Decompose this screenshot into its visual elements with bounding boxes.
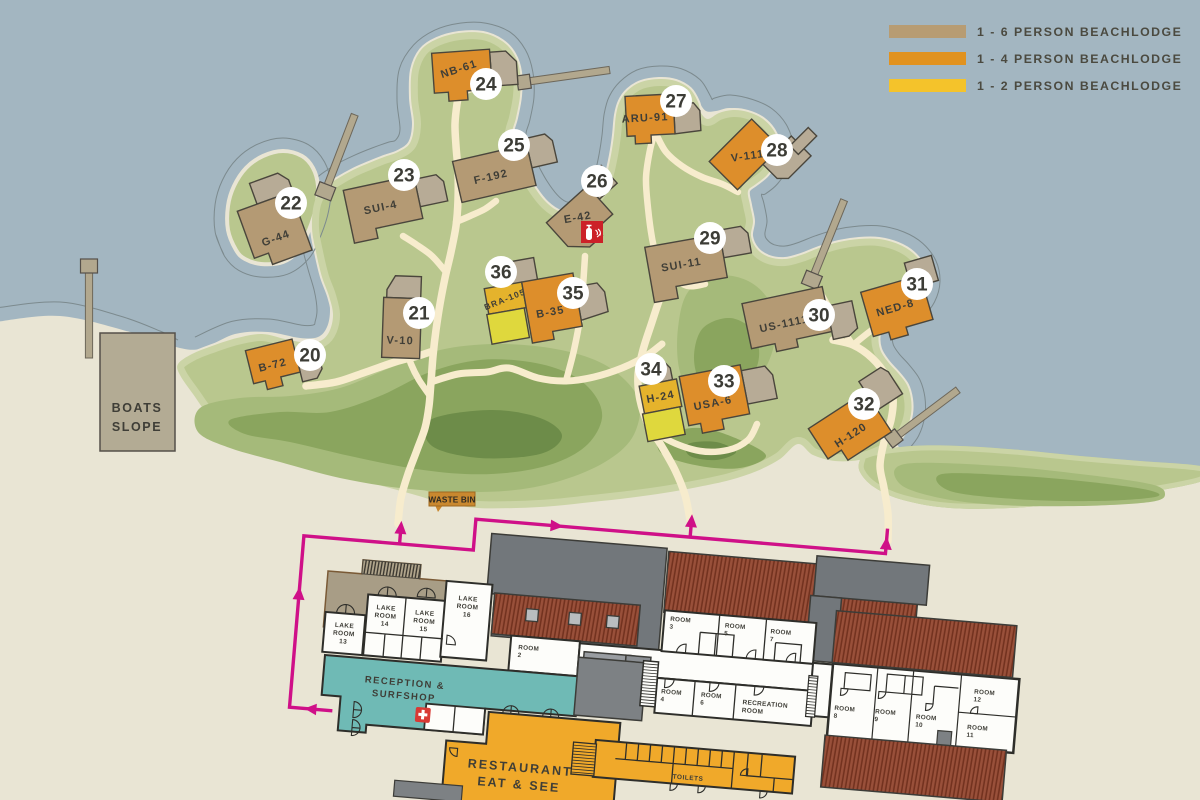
svg-text:WASTE BIN: WASTE BIN <box>428 496 475 505</box>
svg-text:22: 22 <box>280 194 301 215</box>
svg-text:24: 24 <box>475 75 497 96</box>
svg-text:20: 20 <box>299 346 320 367</box>
svg-text:10: 10 <box>915 721 923 729</box>
svg-text:31: 31 <box>906 275 928 296</box>
svg-text:15: 15 <box>419 626 428 634</box>
svg-text:21: 21 <box>408 304 430 325</box>
svg-text:16: 16 <box>463 611 472 619</box>
svg-text:8: 8 <box>833 713 838 720</box>
svg-text:23: 23 <box>393 166 414 187</box>
svg-text:3: 3 <box>669 624 674 631</box>
svg-text:30: 30 <box>808 306 829 327</box>
svg-text:9: 9 <box>874 716 879 723</box>
svg-text:29: 29 <box>699 229 720 250</box>
svg-text:11: 11 <box>966 732 974 740</box>
svg-text:35: 35 <box>562 284 584 305</box>
svg-text:25: 25 <box>503 136 525 157</box>
svg-text:14: 14 <box>380 621 389 629</box>
svg-text:5: 5 <box>724 630 729 637</box>
svg-text:ARU-91: ARU-91 <box>621 111 669 125</box>
svg-text:V-10: V-10 <box>386 334 414 347</box>
svg-text:1 - 2 PERSON BEACHLODGE: 1 - 2 PERSON BEACHLODGE <box>977 79 1182 93</box>
svg-text:13: 13 <box>339 638 348 646</box>
svg-text:26: 26 <box>586 172 607 193</box>
svg-text:2: 2 <box>517 652 522 659</box>
svg-text:1 - 4 PERSON BEACHLODGE: 1 - 4 PERSON BEACHLODGE <box>977 52 1182 66</box>
svg-text:34: 34 <box>640 360 662 381</box>
svg-text:27: 27 <box>665 92 686 113</box>
svg-text:36: 36 <box>490 263 511 284</box>
svg-text:BOATS: BOATS <box>112 401 163 415</box>
svg-text:1 - 6 PERSON BEACHLODGE: 1 - 6 PERSON BEACHLODGE <box>977 25 1182 39</box>
svg-text:33: 33 <box>713 372 734 393</box>
svg-text:6: 6 <box>700 699 705 706</box>
svg-text:12: 12 <box>973 696 981 704</box>
svg-text:SLOPE: SLOPE <box>112 420 162 434</box>
svg-text:4: 4 <box>660 696 665 703</box>
svg-text:7: 7 <box>770 636 775 643</box>
svg-text:32: 32 <box>853 395 874 416</box>
svg-text:28: 28 <box>766 141 787 162</box>
